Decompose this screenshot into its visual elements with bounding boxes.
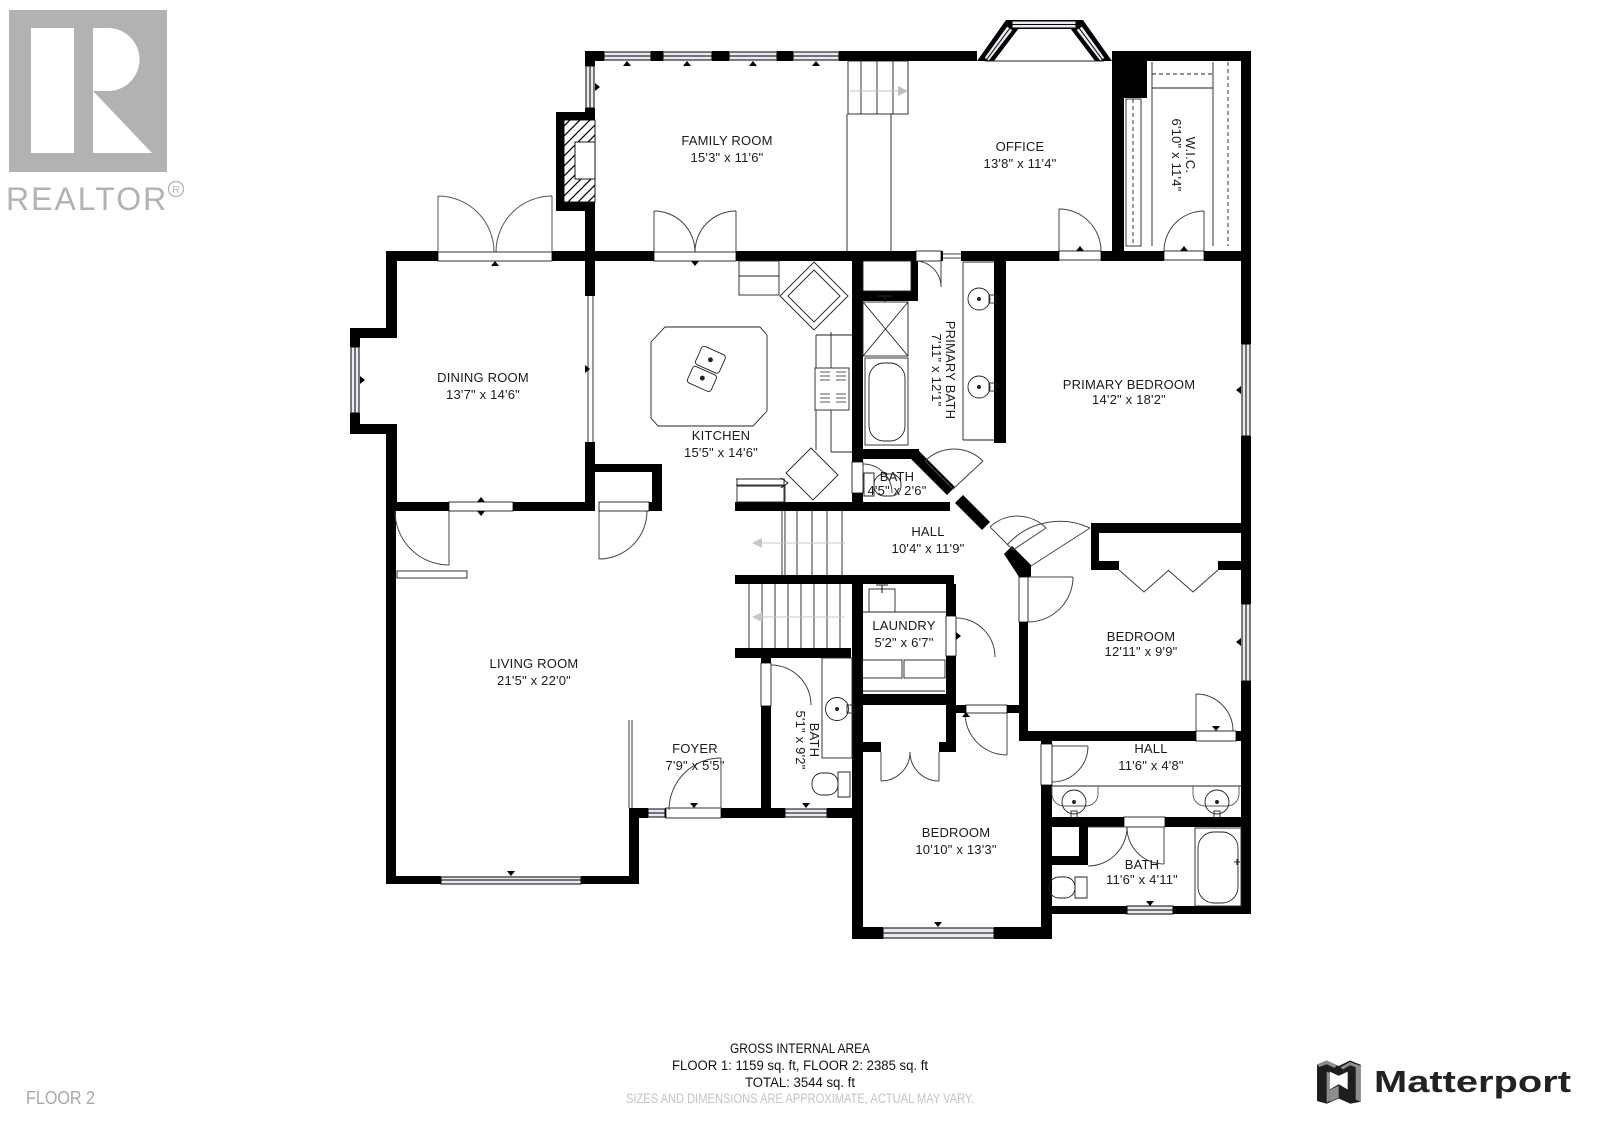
svg-text:BATH: BATH — [807, 723, 822, 758]
svg-text:11'6" x 4'8": 11'6" x 4'8" — [1118, 758, 1184, 773]
svg-text:5'1" x 9'2": 5'1" x 9'2" — [793, 710, 808, 769]
svg-text:FAMILY ROOM: FAMILY ROOM — [681, 133, 772, 148]
svg-text:FLOOR 2: FLOOR 2 — [26, 1088, 95, 1108]
svg-text:HALL: HALL — [911, 524, 944, 539]
svg-text:SIZES AND DIMENSIONS ARE APPRO: SIZES AND DIMENSIONS ARE APPROXIMATE, AC… — [626, 1091, 974, 1106]
svg-text:7'9" x 5'5": 7'9" x 5'5" — [665, 758, 724, 773]
svg-text:12'11" x 9'9": 12'11" x 9'9" — [1105, 644, 1178, 659]
svg-text:R: R — [172, 185, 179, 196]
svg-text:15'5" x 14'6": 15'5" x 14'6" — [684, 445, 758, 460]
svg-text:10'4" x 11'9": 10'4" x 11'9" — [892, 541, 965, 556]
svg-text:FLOOR 1: 1159 sq. ft, FLOOR 2:: FLOOR 1: 1159 sq. ft, FLOOR 2: 2385 sq. … — [672, 1058, 928, 1073]
svg-text:GROSS INTERNAL AREA: GROSS INTERNAL AREA — [730, 1041, 870, 1056]
svg-text:W.I.C.: W.I.C. — [1183, 137, 1198, 174]
svg-text:TOTAL: 3544 sq. ft: TOTAL: 3544 sq. ft — [745, 1075, 855, 1090]
svg-text:10'10" x 13'3": 10'10" x 13'3" — [915, 842, 997, 857]
svg-text:LAUNDRY: LAUNDRY — [872, 618, 935, 633]
svg-text:LIVING ROOM: LIVING ROOM — [490, 656, 579, 671]
svg-text:PRIMARY BEDROOM: PRIMARY BEDROOM — [1063, 377, 1196, 392]
svg-text:4'5" x 2'6": 4'5" x 2'6" — [867, 483, 926, 498]
svg-text:PRIMARY BATH: PRIMARY BATH — [943, 321, 958, 419]
svg-text:Matterport: Matterport — [1374, 1064, 1571, 1099]
svg-text:FOYER: FOYER — [672, 741, 718, 756]
svg-text:BEDROOM: BEDROOM — [922, 825, 991, 840]
svg-text:HALL: HALL — [1134, 741, 1167, 756]
svg-text:OFFICE: OFFICE — [996, 139, 1045, 154]
svg-text:REALTOR: REALTOR — [6, 181, 168, 217]
svg-text:7'11" x 12'1": 7'11" x 12'1" — [929, 334, 944, 407]
svg-text:14'2" x 18'2": 14'2" x 18'2" — [1092, 392, 1166, 407]
svg-text:11'6" x 4'11": 11'6" x 4'11" — [1106, 872, 1178, 887]
svg-text:KITCHEN: KITCHEN — [692, 428, 750, 443]
svg-text:15'3" x 11'6": 15'3" x 11'6" — [691, 150, 764, 165]
svg-text:5'2" x 6'7": 5'2" x 6'7" — [874, 635, 933, 650]
svg-text:21'5" x 22'0": 21'5" x 22'0" — [497, 673, 571, 688]
svg-text:DINING ROOM: DINING ROOM — [437, 370, 529, 385]
svg-text:BATH: BATH — [1125, 857, 1160, 872]
svg-text:BATH: BATH — [880, 469, 915, 484]
svg-text:13'7" x 14'6": 13'7" x 14'6" — [446, 387, 520, 402]
svg-text:6'10" x 11'4": 6'10" x 11'4" — [1169, 119, 1184, 192]
svg-text:BEDROOM: BEDROOM — [1107, 629, 1176, 644]
svg-text:13'8" x 11'4": 13'8" x 11'4" — [984, 156, 1057, 171]
